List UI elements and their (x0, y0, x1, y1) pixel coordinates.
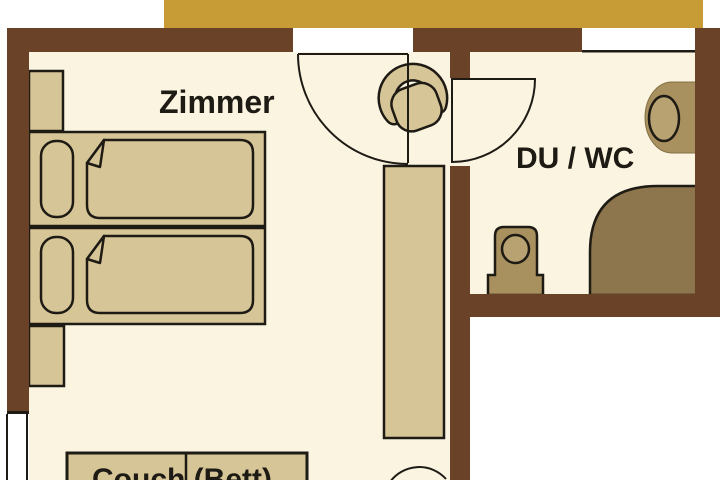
room-label: Zimmer (159, 86, 275, 118)
mattress-lower (87, 236, 253, 313)
mattress-upper (87, 140, 253, 218)
washbasin-bowl (649, 96, 679, 141)
wall-divider-stub (450, 52, 470, 78)
shower (590, 186, 699, 295)
couch-label: Couch (Bett) (92, 465, 272, 480)
pillow-lower (41, 237, 73, 313)
left-wall-lower-window (6, 411, 29, 480)
floor-plan: Zimmer DU / WC Couch (Bett) (0, 0, 720, 480)
entry-door-opening (293, 28, 413, 52)
window-inner-line (26, 414, 28, 480)
wall-top-middle (413, 28, 582, 52)
wall-left (7, 28, 29, 413)
adjacent-building-band (164, 0, 703, 28)
window-sill-line (7, 411, 29, 414)
nightstand-top (29, 71, 63, 131)
bathroom-top-window (582, 50, 695, 53)
wall-divider (450, 166, 470, 480)
wall-right (695, 28, 720, 317)
wall-top-left (7, 28, 293, 52)
floor-plan-drawing (0, 0, 720, 480)
toilet-bowl (502, 235, 529, 263)
window-outer-line (6, 414, 8, 480)
pillow-upper (41, 141, 73, 217)
wall-bathroom-bottom (450, 294, 720, 317)
wardrobe (384, 166, 444, 438)
bathroom-label: DU / WC (516, 144, 634, 174)
nightstand-bottom (29, 326, 64, 386)
